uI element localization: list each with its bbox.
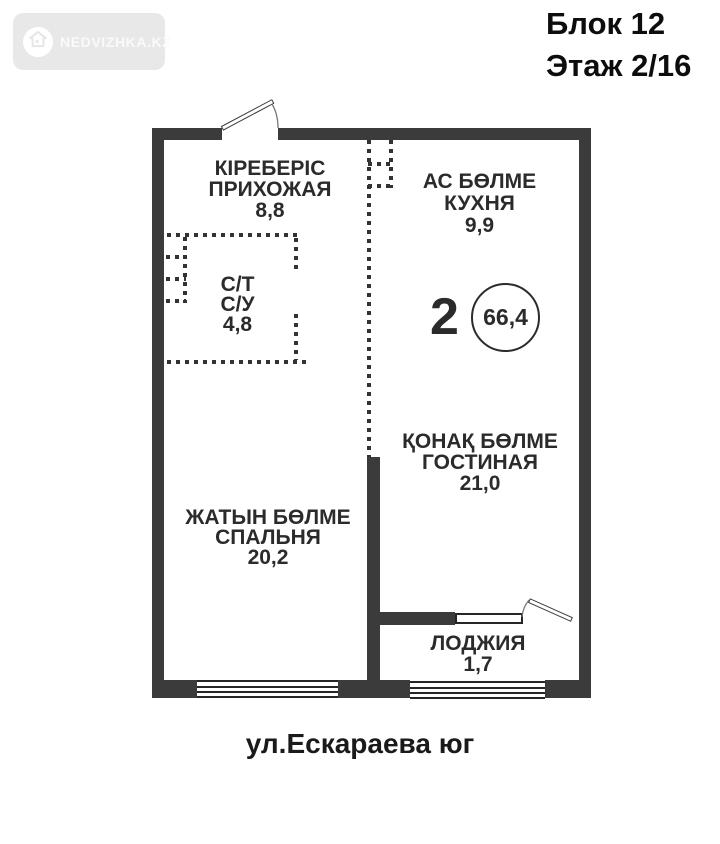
wall-bedroom-living-divider	[367, 457, 380, 680]
living-name-ru: ГОСТИНАЯ	[382, 452, 578, 473]
floor-label: Этаж 2/16	[546, 48, 691, 84]
label-entry: КІРЕБЕРІС ПРИХОЖАЯ 8,8	[170, 158, 370, 221]
window-glass-line	[197, 686, 338, 688]
living-loggia-window	[455, 613, 523, 624]
bedroom-window	[197, 680, 338, 698]
house-icon	[28, 29, 48, 54]
kitchen-name-kk: АС БӨЛМЕ	[382, 171, 577, 193]
block-label: Блок 12	[546, 6, 665, 42]
address-label: ул.Ескараева юг	[0, 728, 720, 760]
wall-bottom-middle	[338, 680, 410, 698]
label-bedroom: ЖАТЫН БӨЛМЕ СПАЛЬНЯ 20,2	[168, 508, 368, 568]
wall-left	[152, 128, 164, 698]
entry-area: 8,8	[170, 200, 370, 221]
floorplan-page: NEDVIZHKA.KZ Блок 12 Этаж 2/16	[0, 0, 720, 844]
entry-name-ru: ПРИХОЖАЯ	[170, 179, 370, 200]
wall-loggia	[367, 612, 455, 625]
entrance-door-leaf	[221, 99, 275, 131]
bedroom-name-ru: СПАЛЬНЯ	[168, 528, 368, 548]
living-area: 21,0	[382, 473, 578, 494]
bathroom-outline-bottom	[167, 360, 310, 364]
label-kitchen: АС БӨЛМЕ КУХНЯ 9,9	[382, 171, 577, 237]
wall-top-right	[278, 128, 591, 140]
bedroom-area: 20,2	[168, 548, 368, 568]
bedroom-name-kk: ЖАТЫН БӨЛМЕ	[168, 508, 368, 528]
room-count: 2	[430, 287, 459, 347]
bathroom-outline-right-upper	[294, 238, 298, 270]
total-area-value: 66,4	[483, 304, 528, 331]
bathroom-name-kk: С/Т	[170, 275, 305, 295]
bathroom-name-ru: С/У	[170, 295, 305, 315]
bathroom-area: 4,8	[170, 315, 305, 335]
label-living: ҚОНАҚ БӨЛМЕ ГОСТИНАЯ 21,0	[382, 431, 578, 494]
label-bathroom: С/Т С/У 4,8	[170, 275, 305, 335]
loggia-bottom-window	[410, 681, 545, 699]
window-glass-line	[410, 692, 545, 694]
total-area-badge: 66,4	[471, 283, 540, 352]
logo-circle	[23, 27, 53, 57]
loggia-area: 1,7	[395, 654, 561, 675]
window-glass-line	[410, 687, 545, 689]
kitchen-area: 9,9	[382, 215, 577, 237]
bathroom-duct-divider-1	[166, 255, 186, 259]
living-name-kk: ҚОНАҚ БӨЛМЕ	[382, 431, 578, 452]
loggia-door-leaf	[528, 598, 573, 622]
entry-name-kk: КІРЕБЕРІС	[170, 158, 370, 179]
kitchen-name-ru: КУХНЯ	[382, 193, 577, 215]
window-glass-line	[197, 691, 338, 693]
watermark-logo: NEDVIZHKA.KZ	[13, 13, 165, 70]
wall-bottom-left-corner	[152, 680, 197, 698]
duct-top-divider-1	[368, 162, 392, 166]
wall-right	[579, 128, 591, 698]
watermark-brand-text: NEDVIZHKA.KZ	[60, 34, 171, 50]
loggia-name-ru: ЛОДЖИЯ	[395, 633, 561, 654]
door-swing-arcs	[0, 0, 720, 844]
wall-bottom-right-corner	[545, 680, 591, 698]
label-loggia: ЛОДЖИЯ 1,7	[395, 633, 561, 675]
